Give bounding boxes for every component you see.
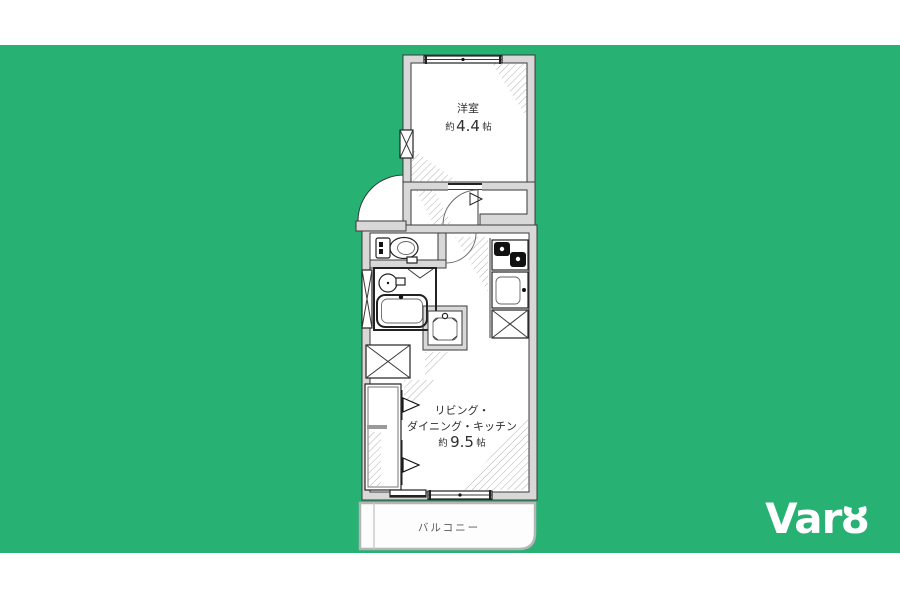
ldk-size-unit: 帖 [476,437,486,449]
bedroom-size-unit: 帖 [482,121,492,133]
bedroom-size-value: 4.4 [456,117,480,135]
kitchen-sink-icon [492,272,528,308]
ldk-name-line2: ダイニング・キッチン [407,419,517,433]
balcony: バルコニー [360,503,535,549]
kitchen [492,240,528,338]
low-window-icon [390,490,426,497]
vanity-icon [428,311,462,345]
entrance-door-swing-icon [358,175,404,221]
pipe-space-icon [362,270,372,328]
balcony-label: バルコニー [418,522,480,534]
page-background: バルコニー 洋室 約 4.4 帖 リビング・ ダイニング・キッチン 約 9.5 … [0,0,900,600]
bedroom-window-icon [424,55,502,64]
gas-stove-icon [492,240,528,270]
ldk-size-value: 9.5 [450,433,474,451]
vars-logo: Varȣ [765,498,868,540]
bedroom-pipe-space-icon [400,130,413,158]
balcony-sliding-door-icon [428,490,492,500]
bedroom-size-prefix: 約 [445,121,455,133]
bedroom-name: 洋室 [457,101,479,115]
ldk-size-prefix: 約 [438,437,448,449]
ldk-name-line1: リビング・ [435,403,490,417]
washing-machine-space-icon [366,345,410,378]
refrigerator-space-icon [492,310,528,338]
